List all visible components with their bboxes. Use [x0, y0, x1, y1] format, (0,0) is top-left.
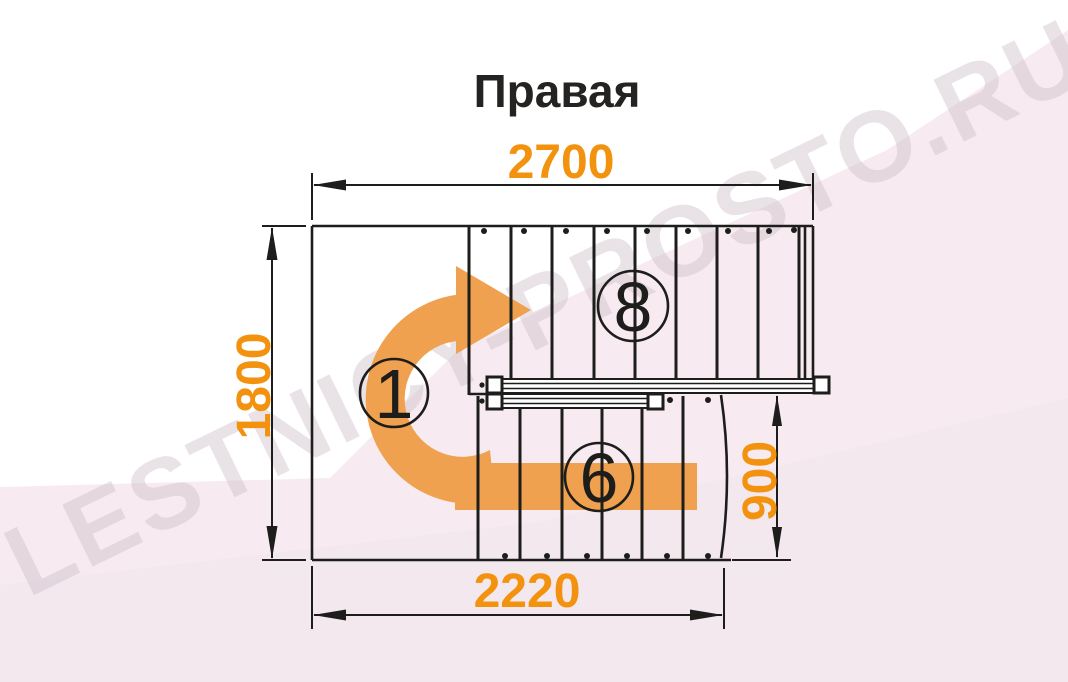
baluster-dot [705, 553, 711, 559]
handrail-bar [494, 379, 822, 393]
dimension-top-label: 2700 [508, 136, 615, 189]
baluster-dot [705, 397, 711, 403]
baluster-dot [563, 228, 569, 234]
dimension-right-label: 900 [734, 441, 787, 521]
baluster-dot [479, 398, 484, 403]
dimension-arrow-icon [267, 227, 278, 260]
handrail-upper [487, 377, 829, 393]
page-title: Правая [474, 65, 641, 117]
dimension-arrow-icon [313, 180, 346, 191]
handrail-post [487, 394, 502, 409]
baluster-dot [766, 228, 772, 234]
landing-badge-label: 1 [375, 355, 414, 433]
baluster-dot [604, 228, 610, 234]
baluster-dot [791, 227, 797, 233]
baluster-dot [479, 382, 484, 387]
handrail-lower [487, 394, 663, 409]
stair-plan-diagram: LESTNICY-PROSTO.RU [0, 0, 1068, 682]
baluster-dot [664, 553, 670, 559]
handrail-post [814, 377, 829, 393]
baluster-dot [544, 553, 550, 559]
dimension-bottom-label: 2220 [474, 565, 581, 618]
handrail-bar [494, 394, 656, 408]
handrail-post [487, 377, 502, 393]
baluster-dot [725, 228, 731, 234]
handrail-post [648, 394, 663, 409]
lower-flight-badge-label: 6 [580, 439, 619, 517]
dimension-left-label: 1800 [228, 333, 281, 440]
baluster-dot [521, 228, 527, 234]
baluster-dot [667, 397, 673, 403]
baluster-dot [584, 553, 590, 559]
upper-flight-badge-label: 8 [614, 268, 653, 346]
baluster-dot [502, 553, 508, 559]
stair-plan-page: LESTNICY-PROSTO.RU [0, 0, 1068, 682]
baluster-dot [644, 228, 650, 234]
baluster-dot [685, 228, 691, 234]
baluster-dot [624, 553, 630, 559]
baluster-dot [481, 228, 487, 234]
